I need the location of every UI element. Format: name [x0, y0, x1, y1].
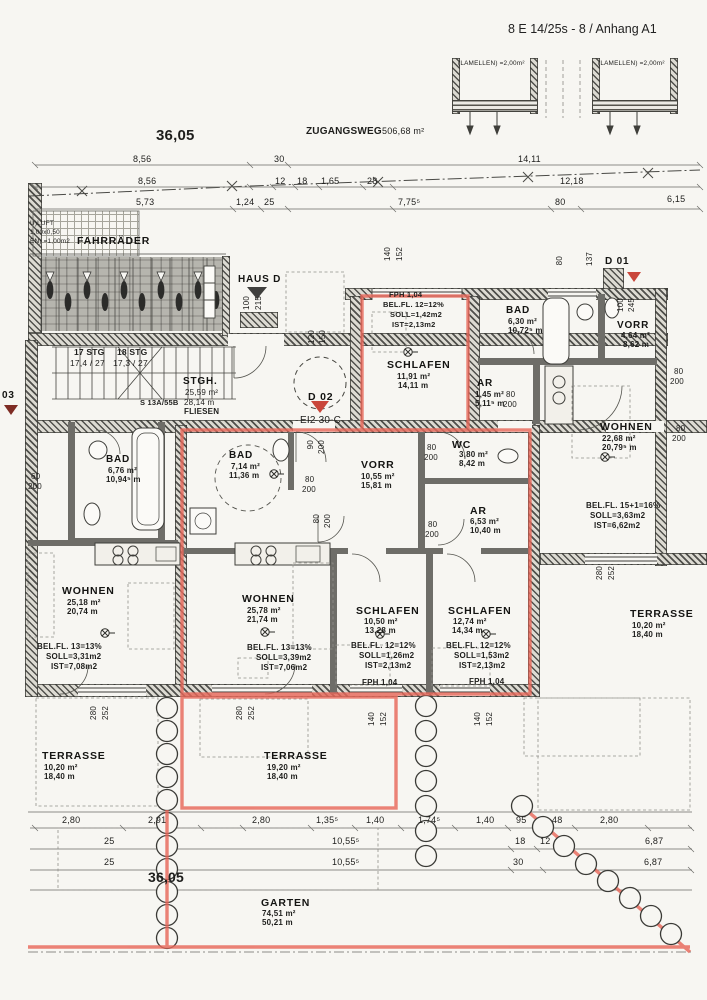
dim-b4: 1,65 [321, 177, 339, 186]
wall-right-apt-band [478, 358, 657, 365]
schlafen-top-soll: SOLL=1,42m2 [390, 311, 442, 319]
ar-mid-area: 6,53 m² [470, 518, 499, 526]
schlafen-top-perimeter: 14,11 m [398, 382, 428, 390]
wohnen-right-soll: SOLL=3,63m2 [590, 512, 645, 520]
wall-kitchen-left [28, 540, 178, 546]
luft-note-3: EN) =1,00m2 [30, 239, 70, 245]
schlafen-left-area: 10,50 m² [364, 618, 398, 626]
wall-divider-left [175, 425, 187, 697]
wohnen-left-soll: SOLL=3,31m2 [46, 653, 101, 661]
dim-terr-left-280: 280 [90, 706, 98, 720]
dim-bottom-r1-4: 1,40 [366, 816, 384, 825]
stair-flight-1-rate: 17,4 / 27 [70, 359, 105, 368]
stairwell-perimeter: 28,14 m [184, 399, 214, 407]
schlafen-left-fph: FPH 1,04 [362, 679, 397, 687]
dim-bottom-r2-3: 12 [540, 837, 550, 846]
dim-left-edge-200: 200 [28, 483, 42, 491]
wohnen-right-bel: BEL.FL. 15+1=16% [586, 502, 660, 510]
wall-bike-east [222, 256, 230, 336]
door-d02-label: D 02 [308, 392, 333, 403]
wohnen-left-name: WOHNEN [62, 586, 115, 597]
terrasse-left-name: TERRASSE [42, 751, 106, 762]
wall-divider-right [528, 425, 540, 697]
dim-bad-mid-200b: 200 [302, 486, 316, 494]
dim-wc-200: 200 [424, 454, 438, 462]
wohnen-mid-name: WOHNEN [242, 594, 295, 605]
dim-window-top-152: 152 [396, 247, 404, 261]
dim-ar-mid-80: 80 [428, 521, 437, 529]
haus-d-label: HAUS D [238, 275, 281, 285]
loggia-left-lamellen-grate [452, 100, 538, 112]
bad-right-area: 6,30 m² [508, 318, 537, 326]
dim-terr-mid-252: 252 [248, 706, 256, 720]
vorr-right-area: 4,64 m² [621, 332, 650, 340]
total-dim-top: 36,05 [156, 128, 195, 143]
wc-name: WC [452, 440, 471, 451]
wall-kitchen-mid [182, 548, 530, 554]
dim-bottom-r1-9: 2,80 [600, 816, 618, 825]
total-dim-bottom: 36,05 [148, 870, 184, 884]
wohnen-left-bel: BEL.FL. 13=13% [37, 643, 102, 651]
schlafen-right-ist: IST=2,13m2 [459, 662, 505, 670]
bad-right-perimeter: 10,72⁵ m [508, 327, 543, 335]
garten-name: GARTEN [261, 898, 310, 909]
bad-mid-perimeter: 11,36 m [229, 472, 259, 480]
dim-bottom-r1-7: 95 [516, 816, 526, 825]
wall-west-structure [28, 183, 42, 333]
dim-bottom-r3-2: 30 [513, 858, 523, 867]
bad-left-area: 6,76 m² [108, 467, 137, 475]
wall-south [28, 684, 540, 697]
dim-terr-right-252: 252 [608, 566, 616, 580]
dim-bottom-r1-0: 2,80 [62, 816, 80, 825]
dim-c2: 1,24 [236, 198, 254, 207]
section-mark: S 13A/55B [140, 399, 179, 407]
terrasse-mid-name: TERRASSE [264, 751, 328, 762]
wall-bad-left-west [68, 422, 75, 540]
dim-east-80-b: 80 [676, 425, 685, 433]
dim-bottom-r3-1: 10,55⁵ [332, 858, 359, 867]
dim-right-137: 137 [586, 252, 594, 266]
wohnen-right-ist: IST=6,62m2 [594, 522, 640, 530]
dim-bad-mid-90: 90 [307, 440, 315, 449]
schlafen-right-soll: SOLL=1,53m2 [454, 652, 509, 660]
dim-a3: 14,11 [518, 155, 541, 164]
ar-small-name: AR [477, 379, 493, 389]
wohnen-left-ist: IST=7,08m2 [51, 663, 97, 671]
garten-area: 74,51 m² [262, 910, 296, 918]
wall-schlafen-divider-b [426, 548, 433, 694]
wall-bad-vorr-right [598, 294, 605, 360]
wall-schlafen-top-left [350, 296, 362, 432]
vorr-mid-name: VORR [361, 460, 395, 471]
dim-terr-right-280: 280 [596, 566, 604, 580]
door-d01-box [603, 268, 624, 289]
terrasse-right-name: TERRASSE [630, 609, 694, 620]
wall-right-south [540, 553, 707, 565]
door-d03-label: 03 [2, 391, 15, 401]
schlafen-top-name: SCHLAFEN [387, 360, 451, 371]
dim-ar-small-200: 200 [503, 401, 517, 409]
bad-mid-area: 7,14 m² [231, 463, 260, 471]
dim-ar-mid-200: 200 [425, 531, 439, 539]
dim-win-b-140: 140 [474, 712, 482, 726]
floorplan-page: 8 E 14/25s - 8 / Anhang A1 (LAMELLEN) =2… [0, 0, 707, 1000]
schlafen-top-area: 11,91 m² [397, 373, 430, 381]
wall-north-facade [28, 333, 668, 346]
dim-vorr-right-245: 245 [628, 298, 636, 312]
dim-c1: 5,73 [136, 198, 154, 207]
bad-left-name: BAD [106, 455, 130, 465]
terrasse-right-area: 10,20 m² [632, 622, 666, 630]
schlafen-right-fph: FPH 1,04 [469, 678, 504, 686]
dim-b1: 8,56 [138, 177, 156, 186]
lamellen-note-left: (LAMELLEN) =2,00m² [458, 61, 525, 67]
dim-bottom-r1-3: 1,35⁵ [316, 816, 338, 825]
dim-right-80: 80 [556, 256, 564, 265]
ar-small-area: 1,45 m² [475, 391, 504, 399]
wohnen-right-perimeter: 20,79⁵ m [602, 444, 637, 452]
dim-stgh-150: 150 [319, 330, 327, 344]
luft-note-2: 1,00x0,50 [30, 230, 60, 236]
wohnen-left-area: 25,18 m² [67, 599, 101, 607]
dim-win-a-152: 152 [380, 712, 388, 726]
dim-bottom-r1-6: 1,40 [476, 816, 494, 825]
document-reference: 8 E 14/25s - 8 / Anhang A1 [508, 22, 657, 36]
bad-mid-name: BAD [229, 451, 253, 461]
dim-bottom-r1-2: 2,80 [252, 816, 270, 825]
wall-wc-ar [418, 478, 530, 484]
dim-bad-mid-200: 200 [318, 440, 326, 454]
terrasse-left-perimeter: 18,40 m [44, 773, 75, 781]
schlafen-left-perimeter: 13,28 m [365, 627, 396, 635]
dim-left-edge-60: 60 [31, 473, 40, 481]
dim-bottom-r1-1: 2,91 [148, 816, 166, 825]
ar-mid-perimeter: 10,40 m [470, 527, 501, 535]
schlafen-left-ist: IST=2,13m2 [365, 662, 411, 670]
stairwell-floor: FLIESEN [184, 408, 219, 416]
dim-c6: 6,15 [667, 195, 685, 204]
wall-bad-mid-east [288, 432, 294, 490]
schlafen-top-bel: BEL.FL. 12=12% [383, 301, 444, 309]
wohnen-right-area: 22,68 m² [602, 435, 636, 443]
schlafen-left-name: SCHLAFEN [356, 606, 420, 617]
door-d02-class: EI2 30-C [300, 416, 341, 426]
stair-flight-1: 17 STG [74, 348, 105, 357]
wall-schlafen-divider-a [330, 548, 337, 694]
stairwell-area: 25,59 m² [185, 389, 218, 397]
bad-right-name: BAD [506, 306, 530, 316]
stairwell-name: STGH. [183, 377, 218, 387]
wohnen-left-perimeter: 20,74 m [67, 608, 98, 616]
schlafen-right-perimeter: 14,34 m [452, 627, 483, 635]
dim-b5: 28 [367, 177, 377, 186]
schlafen-right-name: SCHLAFEN [448, 606, 512, 617]
dim-bottom-r2-0: 25 [104, 837, 114, 846]
dim-c3: 25 [264, 198, 274, 207]
dim-a1: 8,56 [133, 155, 151, 164]
zugangsweg-label: ZUGANGSWEG [306, 127, 382, 137]
loggia-right-lamellen-grate [592, 100, 678, 112]
dim-bottom-r2-2: 18 [515, 837, 525, 846]
vorr-right-perimeter: 8,62 m [623, 341, 649, 349]
dim-b3: 18 [297, 177, 307, 186]
zugangsweg-area: 506,68 m² [382, 127, 424, 136]
haus-d-step [240, 312, 278, 328]
dim-stgh-120: 120 [308, 330, 316, 344]
ar-mid-name: AR [470, 506, 487, 517]
vorr-mid-perimeter: 15,81 m [361, 482, 392, 490]
schlafen-left-soll: SOLL=1,26m2 [359, 652, 414, 660]
schlafen-right-bel: BEL.FL. 12=12% [446, 642, 511, 650]
wohnen-mid-perimeter: 21,74 m [247, 616, 278, 624]
luft-note-1: U)LUFT [30, 221, 54, 227]
wohnen-right-name: WOHNEN [600, 422, 653, 433]
vorr-right-name: VORR [617, 321, 649, 331]
dim-east-200-a: 200 [670, 378, 684, 386]
dim-bottom-r3-3: 6,87 [644, 858, 662, 867]
wall-ar-small-east [533, 358, 540, 424]
dim-wohnen-door-200: 200 [324, 514, 332, 528]
wc-area: 3,80 m² [459, 451, 488, 459]
wohnen-mid-soll: SOLL=3,39m2 [256, 654, 311, 662]
dim-bad-mid-80: 80 [305, 476, 314, 484]
dim-bottom-r2-4: 6,87 [645, 837, 663, 846]
wall-east-facade [655, 288, 667, 566]
dim-bottom-r2-1: 10,55⁵ [332, 837, 359, 846]
schlafen-top-ist: IST=2,13m2 [392, 321, 435, 329]
bad-left-perimeter: 10,94⁵ m [106, 476, 141, 484]
terrasse-mid-area: 19,20 m² [267, 764, 301, 772]
dim-ar-small-80: 80 [506, 391, 515, 399]
fahrraeder-label: FAHRRÄDER [77, 236, 150, 247]
stair-flight-2-rate: 17,3 / 27 [113, 359, 148, 368]
dim-terr-left-252: 252 [102, 706, 110, 720]
lamellen-note-right: (LAMELLEN) =2,00m² [598, 61, 665, 67]
dim-bottom-r1-5: 1,74⁵ [418, 816, 440, 825]
dim-a2: 30 [274, 155, 284, 164]
dim-east-80-a: 80 [674, 368, 683, 376]
dim-bottom-r1-8: 48 [552, 816, 562, 825]
dim-vorr-right-100: 100 [617, 298, 625, 312]
schlafen-top-fph: FPH 1,04 [389, 291, 422, 299]
door-d01-label: D 01 [605, 257, 629, 267]
wall-vorr-wc [418, 432, 425, 548]
ar-small-perimeter: 5,11⁵ m [475, 400, 505, 408]
vorr-mid-area: 10,55 m² [361, 473, 395, 481]
dim-c5: 80 [555, 198, 565, 207]
dim-c4: 7,75⁵ [398, 198, 420, 207]
wc-perimeter: 8,42 m [459, 460, 485, 468]
wall-bad-left-east [158, 422, 165, 540]
schlafen-right-area: 12,74 m² [453, 618, 487, 626]
garten-perimeter: 50,21 m [262, 919, 293, 927]
dim-b2: 12 [275, 177, 285, 186]
schlafen-left-bel: BEL.FL. 12=12% [351, 642, 416, 650]
dim-wohnen-door-80: 80 [313, 514, 321, 523]
dim-win-a-140: 140 [368, 712, 376, 726]
wohnen-mid-area: 25,78 m² [247, 607, 281, 615]
bike-rack-area [36, 257, 224, 331]
wohnen-mid-ist: IST=7,06m2 [261, 664, 307, 672]
stair-flight-2: 18 STG [117, 348, 148, 357]
terrasse-left-area: 10,20 m² [44, 764, 78, 772]
wohnen-mid-bel: BEL.FL. 13=13% [247, 644, 312, 652]
plan-linework [0, 0, 707, 1000]
dim-window-top-140: 140 [384, 247, 392, 261]
dim-haus-d-height: 215 [255, 296, 263, 310]
dim-wc-80: 80 [427, 444, 436, 452]
dim-east-200-b: 200 [672, 435, 686, 443]
terrasse-mid-perimeter: 18,40 m [267, 773, 298, 781]
dim-bottom-r3-0: 25 [104, 858, 114, 867]
dim-win-b-152: 152 [486, 712, 494, 726]
dim-terr-mid-280: 280 [236, 706, 244, 720]
dim-b6: 12,18 [560, 177, 584, 186]
terrasse-right-perimeter: 18,40 m [632, 631, 663, 639]
dim-haus-d-width: 100 [243, 296, 251, 310]
